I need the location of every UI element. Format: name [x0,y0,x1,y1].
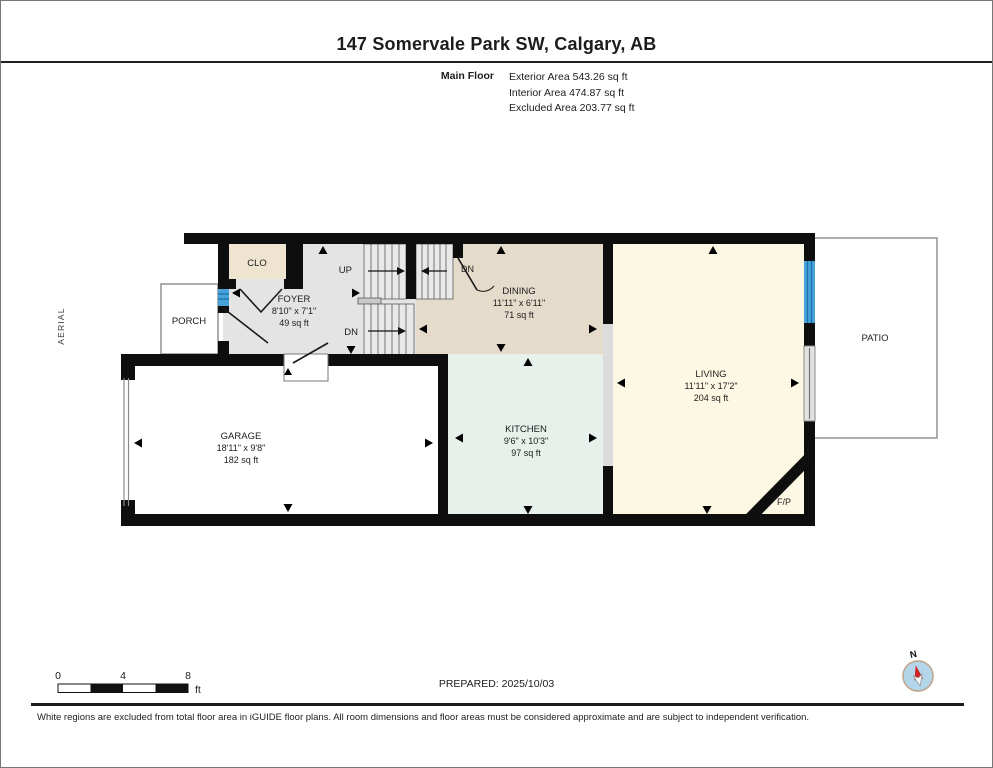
label-stairs-dn-lower: DN [344,327,358,338]
label-living-area: 204 sq ft [694,393,729,403]
garage-door [121,378,133,506]
window-icon-foyer [218,289,229,306]
label-kitchen: KITCHEN [505,424,547,435]
label-living: LIVING [695,369,726,380]
entry-landing [284,354,328,381]
label-dining: DINING [502,286,535,297]
floorplan-page: 147 Somervale Park SW, Calgary, AB Main … [0,0,993,768]
compass-north-label: N [909,649,918,661]
label-closet: CLO [247,258,267,269]
floorplan-drawing: CLO PORCH FOYER 8'10" x 7'1" 49 sq ft DI… [1,1,993,768]
window-icon-living [804,261,815,323]
label-kitchen-dims: 9'6" x 10'3" [504,436,548,446]
aerial-label: AERIAL [56,307,66,344]
patio-door [804,346,815,421]
label-dining-area: 71 sq ft [504,310,534,320]
label-dining-dims: 11'11" x 6'11" [493,298,545,308]
disclaimer-text: White regions are excluded from total fl… [37,712,957,723]
label-foyer: FOYER [278,294,311,305]
label-garage-dims: 18'11" x 9'8" [217,443,266,453]
opening-dining-living [603,324,613,466]
label-foyer-area: 49 sq ft [279,318,309,328]
label-stairs-up: UP [339,265,352,276]
label-foyer-dims: 8'10" x 7'1" [272,306,316,316]
label-patio: PATIO [861,333,888,344]
label-porch: PORCH [172,316,206,327]
label-fireplace: F/P [777,497,791,507]
footer-divider [31,703,964,706]
label-living-dims: 11'11" x 17'2" [684,381,737,391]
label-garage: GARAGE [221,431,262,442]
label-stairs-dn-upper: DN [461,264,474,274]
prepared-date: PREPARED: 2025/10/03 [1,678,992,690]
label-kitchen-area: 97 sq ft [511,448,541,458]
label-garage-area: 182 sq ft [224,455,259,465]
